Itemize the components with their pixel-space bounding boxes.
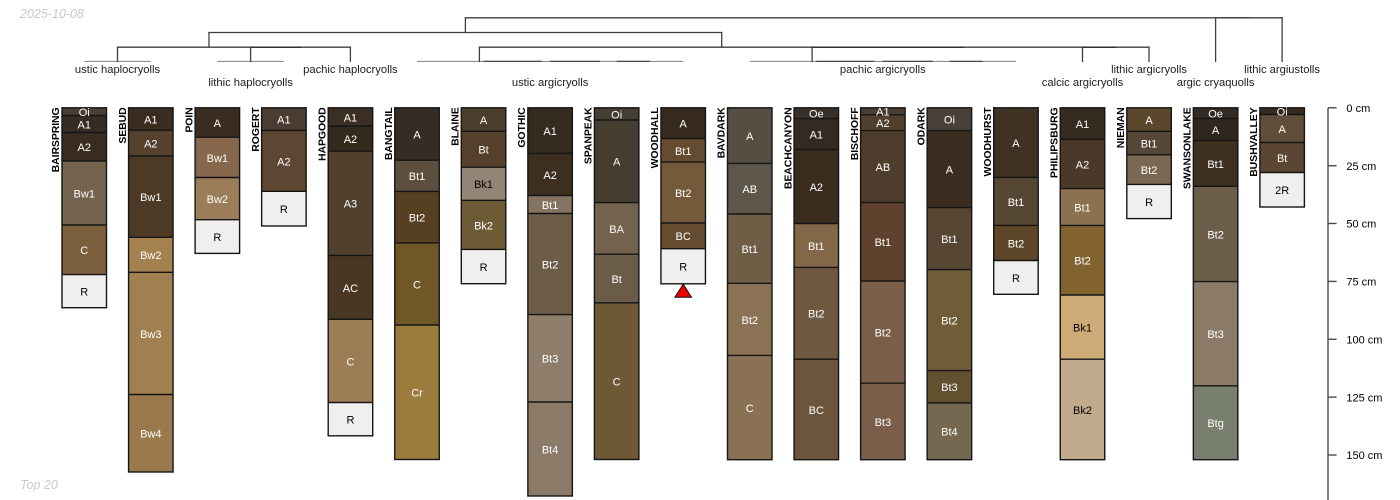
svg-text:A: A	[1012, 138, 1020, 150]
svg-text:Bt1: Bt1	[1074, 202, 1091, 214]
svg-text:A: A	[946, 165, 954, 177]
svg-text:100 cm: 100 cm	[1346, 335, 1382, 347]
svg-text:Bw4: Bw4	[140, 429, 161, 441]
svg-text:A1: A1	[876, 107, 889, 119]
svg-text:A: A	[1212, 125, 1220, 137]
svg-text:pachic argicryolls: pachic argicryolls	[840, 64, 926, 76]
svg-text:AB: AB	[742, 184, 757, 196]
svg-text:GOTHIC: GOTHIC	[516, 107, 528, 148]
svg-text:BEACHCANYON: BEACHCANYON	[782, 107, 794, 189]
svg-text:Bt3: Bt3	[1207, 329, 1224, 341]
svg-text:A: A	[613, 157, 621, 169]
svg-text:BA: BA	[609, 224, 624, 236]
svg-text:Bk2: Bk2	[474, 220, 493, 232]
svg-text:C: C	[80, 245, 88, 257]
svg-text:Bt2: Bt2	[1074, 256, 1091, 268]
svg-text:Bt1: Bt1	[741, 244, 758, 256]
svg-text:C: C	[746, 403, 754, 415]
svg-text:Bt3: Bt3	[542, 354, 559, 366]
svg-text:R: R	[679, 262, 687, 274]
svg-text:BAVDARK: BAVDARK	[716, 107, 728, 159]
svg-text:lithic haplocryolls: lithic haplocryolls	[208, 77, 293, 89]
svg-text:argic cryaquolls: argic cryaquolls	[1177, 77, 1255, 89]
svg-text:125 cm: 125 cm	[1346, 392, 1382, 404]
svg-text:Oi: Oi	[611, 109, 622, 121]
svg-text:Oi: Oi	[944, 115, 955, 127]
svg-text:Bt1: Bt1	[1141, 138, 1158, 150]
svg-text:SEBUD: SEBUD	[117, 107, 129, 144]
svg-text:Bk1: Bk1	[1073, 323, 1092, 335]
svg-text:A: A	[1278, 124, 1286, 136]
svg-text:Bt2: Bt2	[741, 315, 758, 327]
svg-text:Bt2: Bt2	[542, 259, 559, 271]
svg-text:A2: A2	[876, 118, 889, 130]
svg-text:Bk2: Bk2	[1073, 405, 1092, 417]
svg-text:Bt2: Bt2	[1207, 229, 1224, 241]
svg-text:AC: AC	[343, 283, 358, 295]
svg-text:R: R	[280, 204, 288, 216]
svg-text:R: R	[346, 415, 354, 427]
svg-text:Bw1: Bw1	[74, 188, 95, 200]
svg-text:Bt2: Bt2	[1141, 165, 1158, 177]
svg-text:A1: A1	[144, 114, 157, 126]
svg-text:calcic argicryolls: calcic argicryolls	[1042, 77, 1124, 89]
svg-text:Bt2: Bt2	[808, 309, 825, 321]
svg-text:C: C	[613, 377, 621, 389]
svg-text:R: R	[213, 232, 221, 244]
svg-text:HAPGOOD: HAPGOOD	[316, 107, 328, 161]
svg-text:A1: A1	[810, 130, 823, 142]
svg-text:Bw2: Bw2	[207, 194, 228, 206]
svg-text:Oe: Oe	[809, 109, 824, 121]
svg-text:WOODHURST: WOODHURST	[982, 107, 994, 177]
svg-text:Bt2: Bt2	[941, 316, 958, 328]
svg-text:A1: A1	[277, 115, 290, 127]
svg-text:AB: AB	[876, 162, 891, 174]
svg-text:R: R	[1012, 273, 1020, 285]
svg-text:Bw2: Bw2	[140, 250, 161, 262]
svg-text:Bt1: Bt1	[1207, 159, 1224, 171]
svg-text:BISCHOFF: BISCHOFF	[849, 107, 861, 161]
svg-text:A1: A1	[344, 112, 357, 124]
svg-text:A1: A1	[1076, 119, 1089, 131]
svg-text:150 cm: 150 cm	[1346, 450, 1382, 462]
svg-text:A1: A1	[543, 126, 556, 138]
svg-text:A1: A1	[78, 119, 91, 131]
svg-text:NIEMAN: NIEMAN	[1115, 107, 1127, 148]
svg-text:25 cm: 25 cm	[1346, 161, 1376, 173]
svg-text:Bw1: Bw1	[207, 153, 228, 165]
svg-text:SPANPEAK: SPANPEAK	[583, 107, 595, 164]
svg-text:pachic haplocryolls: pachic haplocryolls	[303, 64, 398, 76]
svg-text:Bw3: Bw3	[140, 329, 161, 341]
svg-text:Bt2: Bt2	[875, 328, 892, 340]
svg-text:Top 20: Top 20	[20, 478, 58, 492]
svg-text:Bt1: Bt1	[1008, 197, 1025, 209]
svg-text:A2: A2	[1076, 159, 1089, 171]
svg-text:R: R	[80, 287, 88, 299]
svg-text:75 cm: 75 cm	[1346, 277, 1376, 289]
svg-text:Bt2: Bt2	[1008, 238, 1025, 250]
svg-text:A: A	[746, 131, 754, 143]
svg-text:lithic argiustolls: lithic argiustolls	[1244, 64, 1320, 76]
svg-text:lithic argicryolls: lithic argicryolls	[1111, 64, 1187, 76]
svg-text:BC: BC	[676, 231, 691, 243]
svg-text:A: A	[1145, 115, 1153, 127]
svg-text:ustic haplocryolls: ustic haplocryolls	[75, 64, 161, 76]
svg-text:Bt2: Bt2	[409, 213, 426, 225]
svg-text:A: A	[413, 129, 421, 141]
svg-text:SWANSONLAKE: SWANSONLAKE	[1182, 107, 1194, 189]
svg-text:Bt1: Bt1	[875, 237, 892, 249]
svg-text:BAIRSPRING: BAIRSPRING	[50, 107, 62, 172]
svg-text:Bt1: Bt1	[542, 200, 559, 212]
svg-text:Bt: Bt	[478, 145, 488, 157]
svg-text:2R: 2R	[1275, 185, 1289, 197]
svg-text:Bt1: Bt1	[941, 234, 958, 246]
svg-text:Btg: Btg	[1207, 418, 1224, 430]
svg-text:BC: BC	[809, 405, 824, 417]
svg-text:A2: A2	[78, 142, 91, 154]
svg-text:A2: A2	[144, 139, 157, 151]
svg-text:A: A	[680, 119, 688, 131]
svg-text:ROGERT: ROGERT	[250, 107, 262, 152]
svg-text:A2: A2	[344, 134, 357, 146]
svg-text:BUSHVALLEY: BUSHVALLEY	[1248, 107, 1260, 176]
svg-text:ustic argicryolls: ustic argicryolls	[512, 77, 589, 89]
svg-text:WOODHALL: WOODHALL	[649, 107, 661, 169]
svg-text:Bt1: Bt1	[808, 241, 825, 253]
svg-text:Bt1: Bt1	[675, 146, 692, 158]
svg-text:R: R	[1145, 197, 1153, 209]
svg-text:ODARK: ODARK	[915, 107, 927, 146]
svg-text:A3: A3	[344, 199, 357, 211]
svg-text:Bt: Bt	[1277, 153, 1287, 165]
svg-text:R: R	[480, 262, 488, 274]
svg-text:A2: A2	[277, 156, 290, 168]
svg-text:A: A	[214, 118, 222, 130]
svg-text:C: C	[413, 279, 421, 291]
svg-text:0 cm: 0 cm	[1346, 103, 1370, 115]
svg-text:Bt3: Bt3	[941, 382, 958, 394]
svg-text:Bt4: Bt4	[941, 427, 958, 439]
svg-text:Oi: Oi	[1277, 107, 1288, 119]
svg-text:C: C	[346, 356, 354, 368]
svg-text:Bt3: Bt3	[875, 417, 892, 429]
svg-text:A: A	[480, 115, 488, 127]
svg-text:Bk1: Bk1	[474, 179, 493, 191]
svg-text:Bt4: Bt4	[542, 444, 559, 456]
svg-text:BLAINE: BLAINE	[450, 107, 462, 146]
svg-text:PHILIPSBURG: PHILIPSBURG	[1048, 107, 1060, 178]
svg-text:Bt2: Bt2	[675, 188, 692, 200]
svg-text:BANGTAIL: BANGTAIL	[383, 107, 395, 160]
svg-text:Bt: Bt	[611, 274, 621, 286]
svg-text:Bt1: Bt1	[409, 171, 426, 183]
svg-text:Oi: Oi	[79, 107, 90, 119]
svg-text:Cr: Cr	[411, 388, 423, 400]
svg-text:50 cm: 50 cm	[1346, 219, 1376, 231]
svg-text:Oe: Oe	[1208, 109, 1223, 121]
svg-text:2025-10-08: 2025-10-08	[19, 7, 84, 21]
svg-text:Bw1: Bw1	[140, 192, 161, 204]
svg-text:A2: A2	[543, 170, 556, 182]
svg-text:A2: A2	[810, 182, 823, 194]
svg-text:POIN: POIN	[183, 107, 195, 132]
